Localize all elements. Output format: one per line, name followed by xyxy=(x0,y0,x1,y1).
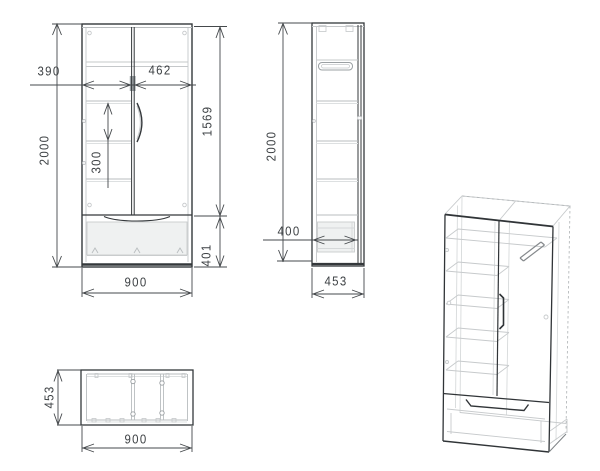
dim-label-plan-width: 900 xyxy=(124,433,147,446)
front-view-drawing xyxy=(82,24,192,267)
dim-label-side-height: 2000 xyxy=(265,131,278,162)
dim-label-front-right-opening: 462 xyxy=(148,64,171,77)
side-view-drawing xyxy=(312,23,364,266)
dim-label-plan-depth: 453 xyxy=(43,385,56,408)
dim-label-side-drawer-depth: 400 xyxy=(277,225,300,238)
dim-label-side-depth: 453 xyxy=(324,275,347,288)
wardrobe-technical-drawing: 2000 390 462 300 1569 401 900 2000 400 4… xyxy=(0,0,600,471)
dim-label-front-height: 2000 xyxy=(38,135,51,166)
iso-view-drawing xyxy=(443,196,570,452)
dim-label-front-width: 900 xyxy=(124,276,147,289)
dim-label-front-left-opening: 390 xyxy=(37,65,60,78)
dim-label-front-door-height: 1569 xyxy=(201,106,214,137)
plan-view-drawing xyxy=(81,370,193,425)
dim-label-front-shelf-spacing: 300 xyxy=(90,150,103,173)
dim-label-front-drawer-height: 401 xyxy=(200,243,213,266)
